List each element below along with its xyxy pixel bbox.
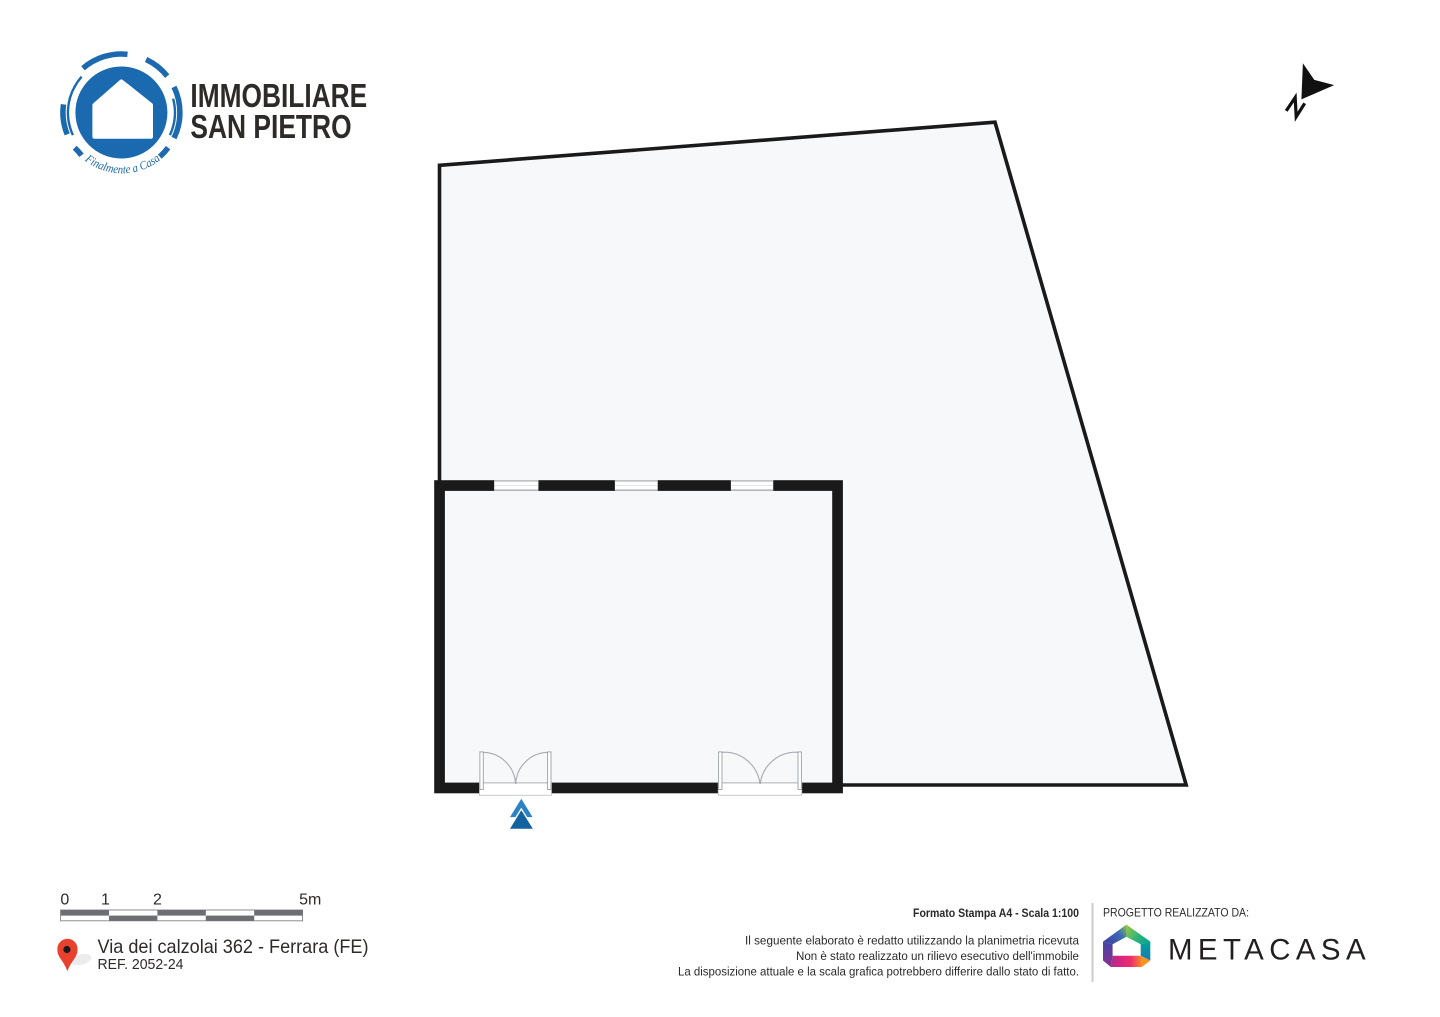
svg-text:Il seguente elaborato è redatt: Il seguente elaborato è redatto utilizza… (745, 933, 1079, 947)
svg-text:0: 0 (60, 892, 69, 909)
svg-text:Non è stato realizzato un rili: Non è stato realizzato un rilievo esecut… (796, 949, 1079, 963)
svg-text:PROGETTO REALIZZATO DA:: PROGETTO REALIZZATO DA: (1103, 906, 1249, 920)
svg-text:5m: 5m (299, 892, 321, 909)
svg-text:SAN PIETRO: SAN PIETRO (190, 108, 351, 145)
svg-text:Formato Stampa A4 - Scala 1:10: Formato Stampa A4 - Scala 1:100 (913, 906, 1079, 920)
svg-text:1: 1 (101, 892, 110, 909)
svg-text:2: 2 (153, 892, 162, 909)
svg-text:REF. 2052-24: REF. 2052-24 (98, 956, 184, 973)
svg-text:La disposizione attuale e la s: La disposizione attuale e la scala grafi… (678, 964, 1079, 978)
svg-text:Via dei calzolai 362 - Ferrara: Via dei calzolai 362 - Ferrara (FE) (98, 936, 369, 958)
svg-text:METACASA: METACASA (1168, 934, 1371, 967)
